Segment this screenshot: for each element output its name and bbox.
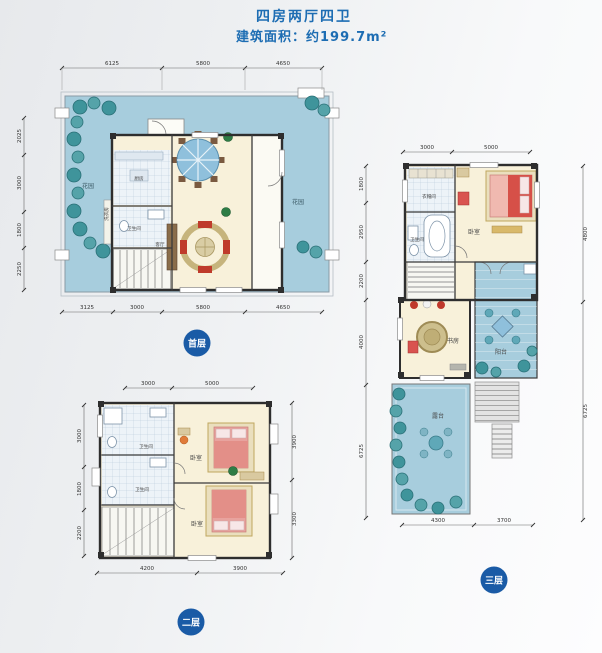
- room-label-terrace: 露台: [432, 412, 444, 420]
- room-label-bath: 卫生间: [127, 225, 141, 232]
- third-floor-badge: 三层: [481, 567, 508, 594]
- room-label-bath-top: 卫生间: [139, 443, 153, 450]
- window: [403, 180, 408, 202]
- room-label-garden-left: 花园: [82, 182, 94, 190]
- column: [270, 494, 278, 514]
- room-label-living: 客厅: [155, 241, 165, 248]
- balcony-area: [475, 262, 537, 378]
- dim-label: 1800: [77, 482, 83, 496]
- toilet-icon: [410, 245, 419, 256]
- dim-label: 4650: [276, 305, 290, 311]
- dim-label: 3000: [141, 381, 155, 387]
- second-floor-plan: 卫生间 卫生间 卧室 卧室 3000 5000 3000 1800 2200 3…: [77, 381, 298, 636]
- dim-label: 3000: [130, 305, 144, 311]
- column: [325, 250, 339, 260]
- dim-label: 3700: [497, 518, 511, 524]
- chair-icon: [410, 301, 418, 309]
- window: [192, 133, 218, 138]
- dim-label: 4650: [276, 61, 290, 67]
- dim-label: 4000: [359, 335, 365, 349]
- dim-label: 5800: [196, 305, 210, 311]
- planter-icon: [229, 467, 238, 476]
- pergola-steps-icon: [475, 382, 519, 458]
- room-label-laundry: 洗衣房: [103, 207, 110, 221]
- dim-label: 1800: [359, 177, 365, 191]
- dim-label: 5000: [205, 381, 219, 387]
- first-floor-building: [104, 119, 285, 293]
- stairs-icon: [102, 507, 174, 556]
- dim-label: 4200: [140, 566, 154, 572]
- window: [98, 415, 103, 437]
- svg-text:首层: 首层: [188, 338, 206, 350]
- first-floor-badge: 首层: [184, 330, 211, 357]
- column: [270, 424, 278, 444]
- sink-icon: [150, 458, 166, 467]
- dining-table-icon: [172, 131, 225, 188]
- window: [188, 556, 216, 561]
- dim-label: 3000: [77, 429, 83, 443]
- window: [216, 288, 242, 293]
- stairs-icon: [407, 262, 455, 300]
- room-label-bath: 卫生间: [410, 236, 424, 243]
- planter-icon: [222, 208, 231, 217]
- column: [55, 108, 69, 118]
- dim-label: 5800: [196, 61, 210, 67]
- room-label-kitchen: 厨房: [134, 175, 144, 182]
- dim-label: 3900: [292, 435, 298, 449]
- second-floor-badge: 二层: [178, 609, 205, 636]
- room-label-balcony: 阳台: [495, 348, 507, 356]
- terrace-area: [390, 384, 470, 514]
- chair-icon: [458, 192, 469, 205]
- dim-label: 2200: [77, 526, 83, 540]
- room-label-bath-bottom: 卫生间: [135, 486, 149, 493]
- dim-label: 2250: [17, 262, 23, 276]
- column: [92, 468, 100, 486]
- sink-icon: [148, 210, 164, 219]
- washer-icon: [524, 264, 536, 274]
- room-label-study: 书房: [447, 337, 459, 345]
- room-label-bedroom: 卧室: [468, 228, 480, 236]
- dim-label: 5000: [484, 145, 498, 151]
- dim-label: 3125: [80, 305, 94, 311]
- dim-label: 6125: [105, 61, 119, 67]
- dim-label: 1800: [17, 223, 23, 237]
- dim-label: 2200: [359, 274, 365, 288]
- dim-label: 3000: [17, 176, 23, 190]
- toilet-icon: [108, 487, 117, 498]
- floor-plan-page: 四房两厅四卫 建筑面积：约199.7m²: [0, 0, 602, 653]
- stairs-icon: [114, 249, 171, 289]
- dim-label: 4300: [431, 518, 445, 524]
- svg-text:三层: 三层: [485, 576, 503, 587]
- dim-label: 4800: [583, 227, 589, 241]
- chair-icon: [437, 301, 445, 309]
- cabinet-icon: [450, 364, 466, 370]
- nightstand-icon: [457, 168, 469, 177]
- room-label-bedroom-top: 卧室: [190, 454, 202, 462]
- dim-label: 3900: [233, 566, 247, 572]
- dim-label: 3000: [420, 145, 434, 151]
- dresser-icon: [240, 472, 264, 480]
- dim-label: 2025: [17, 129, 23, 143]
- room-label-bedroom-bottom: 卧室: [191, 520, 203, 528]
- window: [420, 376, 444, 381]
- room-label-garden-right: 花园: [292, 198, 304, 206]
- dim-label: 6725: [359, 444, 365, 458]
- chair-icon: [180, 436, 188, 444]
- room-label-cloakroom: 衣帽间: [422, 193, 436, 200]
- window: [535, 182, 540, 208]
- third-floor-plan: 衣帽间 卫生间 卧室 阳台 书房 露台 3000 5000 1800 2950 …: [359, 145, 589, 594]
- kitchen-counter-icon: [115, 152, 163, 160]
- desk-icon: [178, 428, 190, 435]
- sink-icon: [150, 408, 166, 417]
- chair-icon: [408, 341, 418, 353]
- window: [280, 222, 285, 248]
- shower-icon: [104, 408, 122, 424]
- window: [398, 318, 403, 340]
- floor-plans-drawing: 花园 花园 厨房 卫生间 洗衣房 客厅 6125 5800 4650 2025 …: [0, 0, 602, 653]
- wardrobe-icon: [409, 169, 453, 178]
- bathtub-icon: [424, 215, 450, 257]
- window: [180, 288, 206, 293]
- svg-text:二层: 二层: [182, 618, 200, 629]
- dim-label: 3300: [292, 512, 298, 526]
- dim-label: 2950: [359, 225, 365, 239]
- window: [470, 163, 498, 168]
- bed-icon: [208, 423, 254, 472]
- dim-label: 6725: [583, 404, 589, 418]
- first-floor-plan: 花园 花园 厨房 卫生间 洗衣房 客厅 6125 5800 4650 2025 …: [17, 61, 339, 357]
- bed-icon: [206, 486, 252, 536]
- toilet-icon: [108, 437, 117, 448]
- column: [55, 250, 69, 260]
- chair-icon: [423, 300, 431, 308]
